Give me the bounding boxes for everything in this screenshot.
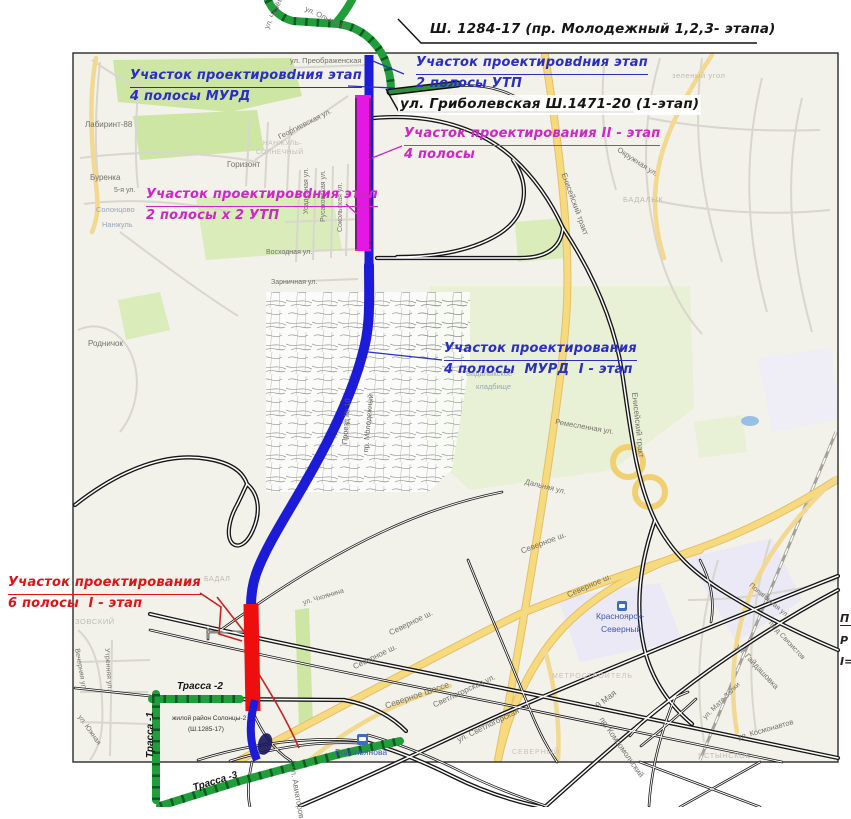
legend-line-2: Р bbox=[840, 634, 851, 647]
road-design-scheme: { "colors": { "route_stage1_blue": "#1c1… bbox=[0, 0, 851, 807]
legend-partial: П Р I= bbox=[840, 612, 851, 676]
map-base bbox=[73, 53, 838, 762]
map-graphics bbox=[0, 0, 851, 807]
legend-line-3: I= bbox=[840, 655, 851, 668]
legend-line-1: П bbox=[840, 612, 851, 626]
route-red-6lanes bbox=[251, 604, 253, 711]
station-icon-vodopyanova bbox=[357, 734, 368, 745]
station-icon-krasnoyarsk-severny bbox=[617, 601, 627, 611]
